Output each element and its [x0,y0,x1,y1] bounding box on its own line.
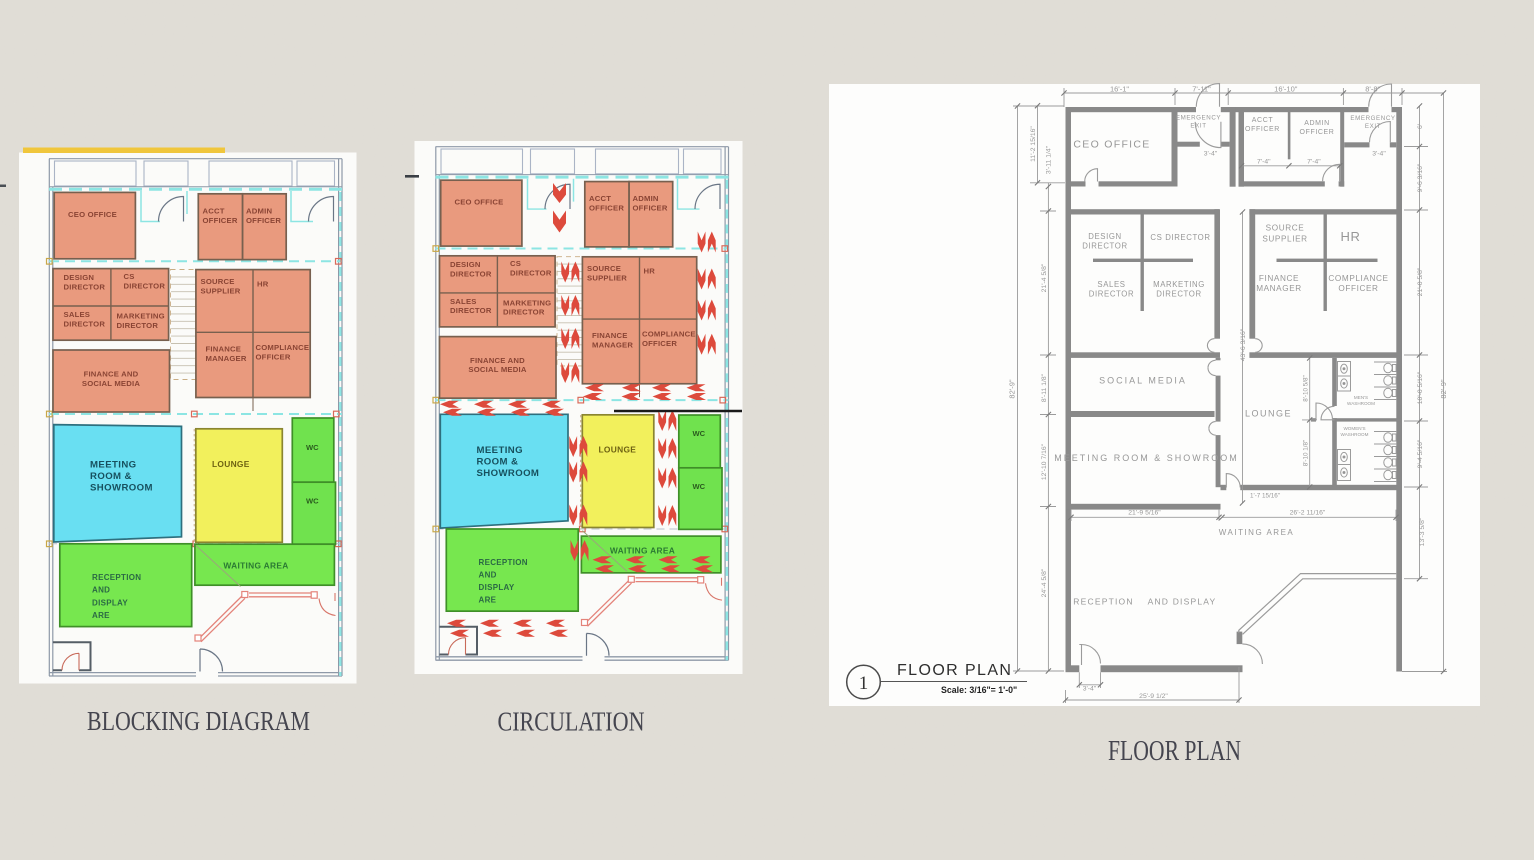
svg-text:FLOOR PLAN: FLOOR PLAN [897,662,1012,679]
svg-text:3'-4": 3'-4" [1083,686,1097,693]
svg-text:DIRECTOR: DIRECTOR [64,319,106,328]
svg-text:OFFICER: OFFICER [633,203,668,212]
svg-text:OFFICER: OFFICER [246,216,281,225]
svg-text:MANAGER: MANAGER [206,354,247,363]
svg-text:8'-10 1/8": 8'-10 1/8" [1302,440,1309,467]
svg-text:ARE: ARE [92,611,110,620]
svg-text:82'-9": 82'-9" [1008,379,1017,398]
svg-text:OFFICER: OFFICER [642,339,677,348]
svg-text:LOUNGE: LOUNGE [212,459,250,469]
svg-text:RECEPTION: RECEPTION [92,573,141,582]
svg-text:HR: HR [644,267,656,276]
svg-text:FLOOR PLAN: FLOOR PLAN [1108,736,1241,767]
svg-text:WAITING AREA: WAITING AREA [1219,528,1295,537]
svg-text:DIRECTOR: DIRECTOR [117,321,159,330]
svg-text:WC: WC [306,443,319,452]
svg-text:3'-4": 3'-4" [1204,150,1218,157]
svg-text:SALES: SALES [450,297,477,306]
svg-text:WOMEN'S: WOMEN'S [1343,426,1365,431]
svg-text:26'-2 11/16": 26'-2 11/16" [1290,510,1326,517]
svg-text:10'-0 5/16": 10'-0 5/16" [1417,371,1424,404]
svg-text:ACCT: ACCT [589,194,611,203]
svg-text:LOUNGE: LOUNGE [599,445,637,455]
svg-text:16'-10": 16'-10" [1274,84,1298,93]
svg-text:CIRCULATION: CIRCULATION [498,706,645,737]
svg-text:6': 6' [1417,124,1424,129]
svg-text:MEETING ROOM & SHOWROOM: MEETING ROOM & SHOWROOM [1054,453,1239,463]
svg-text:FINANCE: FINANCE [1259,274,1299,283]
svg-text:ACCT: ACCT [1252,117,1274,124]
svg-text:WAITING AREA: WAITING AREA [610,546,675,556]
svg-text:SUPPLIER: SUPPLIER [201,286,241,295]
svg-text:WAITING AREA: WAITING AREA [223,561,288,571]
svg-text:RECEPTION: RECEPTION [1073,597,1133,607]
svg-text:COMPLIANCE: COMPLIANCE [256,343,310,352]
svg-text:24'-4 5/8": 24'-4 5/8" [1041,568,1048,597]
svg-text:AND: AND [92,586,110,595]
svg-text:FINANCE AND: FINANCE AND [470,356,525,365]
svg-text:SUPPLIER: SUPPLIER [587,273,627,282]
svg-text:SOURCE: SOURCE [587,264,621,273]
svg-text:MARKETING: MARKETING [117,312,165,321]
svg-text:OFFICER: OFFICER [256,352,291,361]
svg-text:8'-10 5/8": 8'-10 5/8" [1302,375,1309,402]
svg-text:11'-2 15/16": 11'-2 15/16" [1030,126,1037,162]
svg-text:MEETING: MEETING [477,445,523,456]
svg-text:COMPLIANCE: COMPLIANCE [1328,274,1388,283]
svg-text:8'-8": 8'-8" [1365,84,1380,93]
svg-text:7'-4": 7'-4" [1307,159,1321,166]
svg-text:CS: CS [510,259,521,268]
svg-text:SHOWROOM: SHOWROOM [90,483,153,494]
svg-text:EMERGENCY: EMERGENCY [1176,115,1221,122]
svg-text:SOCIAL MEDIA: SOCIAL MEDIA [1099,376,1187,386]
svg-text:EMERGENCY: EMERGENCY [1350,115,1395,122]
svg-text:9'-6 3/16": 9'-6 3/16" [1417,163,1424,192]
svg-text:SALES: SALES [1097,280,1125,289]
svg-text:ARE: ARE [479,596,497,605]
svg-text:LOUNGE: LOUNGE [1245,409,1292,419]
svg-text:Scale: 3/16"= 1'-0": Scale: 3/16"= 1'-0" [941,685,1017,695]
svg-text:WC: WC [693,429,706,438]
svg-text:CS: CS [124,272,135,281]
svg-text:WC: WC [306,497,319,506]
svg-text:SUPPLIER: SUPPLIER [1262,235,1307,244]
svg-text:25'-9 1/2": 25'-9 1/2" [1139,693,1168,700]
svg-text:DISPLAY: DISPLAY [92,598,128,607]
svg-text:ROOM &: ROOM & [477,457,519,468]
svg-text:DIRECTOR: DIRECTOR [1082,242,1127,251]
svg-text:DIRECTOR: DIRECTOR [64,282,106,291]
svg-text:CEO OFFICE: CEO OFFICE [68,210,117,219]
svg-text:CEO OFFICE: CEO OFFICE [455,198,504,207]
svg-text:3'-11 1/4": 3'-11 1/4" [1046,145,1053,174]
svg-text:SALES: SALES [64,310,91,319]
svg-text:WASHROOM: WASHROOM [1341,432,1369,437]
svg-text:12'-10 7/16": 12'-10 7/16" [1041,443,1048,480]
svg-text:8'-11 1/8": 8'-11 1/8" [1041,373,1048,402]
svg-text:1: 1 [859,673,869,694]
svg-text:MARKETING: MARKETING [1153,280,1205,289]
svg-text:MEETING: MEETING [90,460,137,471]
svg-text:HR: HR [257,280,269,289]
svg-text:OFFICER: OFFICER [1245,126,1280,133]
svg-text:MARKETING: MARKETING [503,298,551,307]
svg-text:CS DIRECTOR: CS DIRECTOR [1150,233,1210,242]
svg-text:ROOM &: ROOM & [90,471,132,482]
svg-text:DIRECTOR: DIRECTOR [510,268,552,277]
svg-text:SOURCE: SOURCE [201,277,235,286]
svg-text:MANAGER: MANAGER [1256,284,1302,293]
svg-text:AND: AND [479,571,497,580]
svg-text:DIRECTOR: DIRECTOR [450,269,492,278]
svg-text:DESIGN: DESIGN [1088,232,1122,241]
svg-text:SHOWROOM: SHOWROOM [477,468,540,479]
svg-text:BLOCKING DIAGRAM: BLOCKING DIAGRAM [87,705,310,736]
svg-text:SOCIAL MEDIA: SOCIAL MEDIA [468,365,526,374]
svg-text:7'-11": 7'-11" [1192,84,1211,93]
svg-text:21'-0 5/8": 21'-0 5/8" [1417,267,1424,296]
svg-text:AND DISPLAY: AND DISPLAY [1148,597,1217,607]
svg-text:ACCT: ACCT [203,207,225,216]
svg-text:DESIGN: DESIGN [64,273,95,282]
svg-text:DISPLAY: DISPLAY [479,583,515,592]
svg-text:RECEPTION: RECEPTION [479,558,528,567]
svg-text:DIRECTOR: DIRECTOR [124,281,166,290]
svg-text:MEN'S: MEN'S [1354,395,1368,400]
svg-text:OFFICER: OFFICER [589,203,624,212]
svg-text:MANAGER: MANAGER [592,340,633,349]
svg-text:FINANCE: FINANCE [206,345,242,354]
svg-text:82'-9": 82'-9" [1439,379,1448,398]
svg-text:FINANCE AND: FINANCE AND [84,370,139,379]
svg-text:HR: HR [1341,229,1361,244]
svg-text:13'-3 5/8": 13'-3 5/8" [1419,517,1426,546]
svg-text:1'-7 15/16": 1'-7 15/16" [1250,493,1280,500]
svg-text:DIRECTOR: DIRECTOR [1156,290,1201,299]
svg-text:WASHROOM: WASHROOM [1347,401,1375,406]
svg-text:CEO OFFICE: CEO OFFICE [1073,139,1150,151]
svg-text:DIRECTOR: DIRECTOR [450,306,492,315]
svg-text:ADMIN: ADMIN [246,207,272,216]
svg-text:OFFICER: OFFICER [203,216,238,225]
svg-text:ADMIN: ADMIN [633,194,659,203]
svg-text:9'-4 5/16": 9'-4 5/16" [1417,439,1424,468]
svg-text:21'-9 5/16": 21'-9 5/16" [1128,510,1161,517]
svg-text:DIRECTOR: DIRECTOR [503,308,545,317]
svg-text:EXIT: EXIT [1190,123,1206,130]
svg-text:OFFICER: OFFICER [1300,129,1335,136]
svg-text:SOCIAL MEDIA: SOCIAL MEDIA [82,379,140,388]
svg-text:DIRECTOR: DIRECTOR [1089,290,1134,299]
svg-text:ADMIN: ADMIN [1304,120,1330,127]
svg-text:16'-1": 16'-1" [1110,84,1129,93]
svg-text:EXIT: EXIT [1365,123,1381,130]
svg-text:SOURCE: SOURCE [1266,224,1305,233]
svg-text:7'-4": 7'-4" [1257,159,1271,166]
svg-text:WC: WC [693,482,706,491]
svg-text:COMPLIANCE: COMPLIANCE [642,330,696,339]
svg-text:43'-6 3/16": 43'-6 3/16" [1240,328,1247,361]
svg-text:3'-4": 3'-4" [1372,150,1386,157]
svg-text:OFFICER: OFFICER [1338,284,1378,293]
svg-text:DESIGN: DESIGN [450,260,481,269]
svg-text:21'-4 5/8": 21'-4 5/8" [1041,263,1048,292]
svg-text:FINANCE: FINANCE [592,331,628,340]
